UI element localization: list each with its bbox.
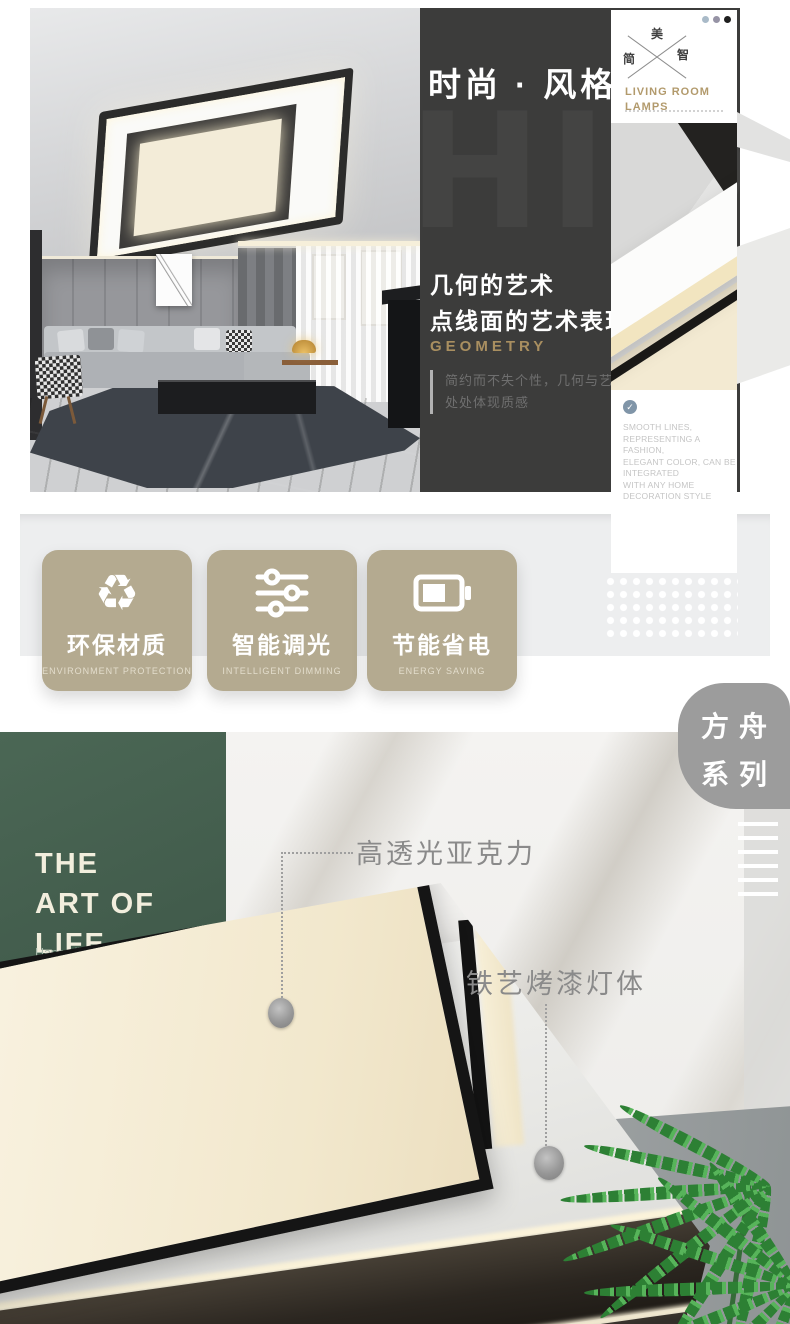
coffee-table [158, 380, 316, 414]
palm-plant [540, 952, 790, 1324]
dotted-divider [625, 110, 723, 112]
check-icon [623, 400, 637, 414]
photo-bleed [737, 228, 790, 384]
dot-icon [724, 16, 731, 23]
pillow [88, 328, 114, 350]
pillow [226, 330, 252, 352]
lamp-detail-photo [611, 123, 737, 390]
dot-pattern [604, 575, 738, 637]
brand-card: 美 简 智 LIVING ROOM LAMPS SMOOTH LINES, RE… [611, 10, 737, 573]
product-detail-page: HION 时尚 · 风格 几何的艺术 点线面的艺术表现方式 GEOMETRY 简… [0, 0, 790, 1324]
lifestyle-section: THE ART OF LIFE Happy life, the source o… [0, 732, 790, 1324]
side-table [282, 360, 338, 365]
hero-title: 时尚 · 风格 [428, 58, 617, 106]
geometry-label: GEOMETRY [430, 338, 547, 355]
armchair [32, 356, 88, 426]
art-heading: 几何的艺术 [430, 266, 555, 300]
series-badge: 方舟 系列 [678, 683, 790, 809]
wall-art [156, 254, 192, 306]
callout-anchor-dot [268, 998, 294, 1028]
callout-leader-line [281, 852, 283, 998]
table-lamp [292, 340, 316, 353]
sliders-icon [207, 550, 357, 624]
piano [388, 300, 420, 428]
pillow [194, 328, 220, 350]
card-description: SMOOTH LINES, REPRESENTING A FASHION, EL… [623, 422, 737, 503]
feature-card-dimming: 智能调光 INTELLIGENT DIMMING [207, 550, 357, 691]
callout-acrylic: 高透光亚克力 [356, 832, 536, 871]
cove-light [238, 241, 420, 246]
photo-bleed [737, 112, 790, 162]
feature-card-environment: ♻ 环保材质 ENVIRONMENT PROTECTION [42, 550, 192, 691]
feature-card-energy: 节能省电 ENERGY SAVING [367, 550, 517, 691]
decor-dots [702, 16, 731, 23]
callout-leader-line [281, 852, 353, 854]
dot-icon [713, 16, 720, 23]
pillow [117, 329, 145, 353]
brand-logo: 美 简 智 [625, 30, 689, 84]
battery-icon [367, 550, 517, 624]
dot-icon [702, 16, 709, 23]
living-room-photo [30, 8, 420, 492]
pillow [57, 329, 85, 354]
recycle-icon: ♻ [42, 550, 192, 624]
decor-lines [738, 822, 778, 906]
